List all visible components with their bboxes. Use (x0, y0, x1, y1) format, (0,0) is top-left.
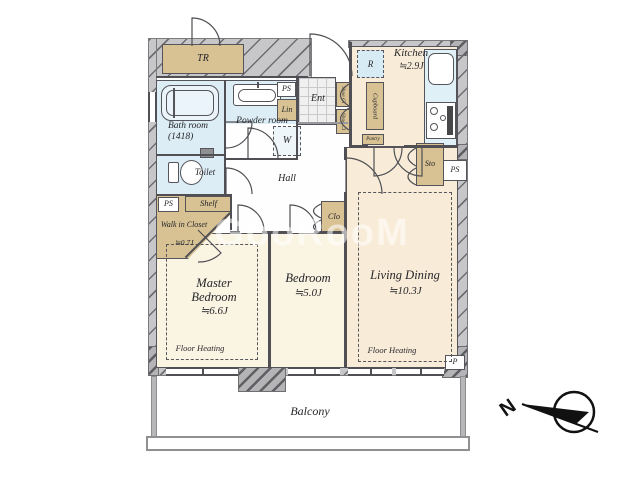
wic-name-text: Walk in Closet (161, 221, 207, 230)
trunk-room-box: TR (162, 44, 244, 74)
balcony-text: Balcony (290, 405, 329, 418)
bathroom-label: Bath room (1418) (168, 112, 212, 152)
master-bedroom-size-text: ≒6.6J (200, 305, 228, 317)
floor-heating-label-master: Floor Heating (170, 342, 230, 355)
wic-size-text: ≒0.7J (175, 239, 194, 247)
watermark: GooRooM (192, 210, 432, 256)
floor-heating-living-text: Floor Heating (368, 346, 417, 356)
floor-heating-master-text: Floor Heating (176, 344, 225, 354)
powder-room-text: Powder room (236, 116, 288, 127)
kitchen-name-text: Kitchen (394, 47, 428, 59)
ps-wic-label: PS (164, 200, 173, 209)
living-dining-name: Living Dining (360, 267, 450, 283)
pantry-label: Pantry (366, 137, 380, 143)
floor-plan: TR R Cupboard Pantry Shoe Cl Shoe Cl PS … (0, 0, 640, 480)
wall (349, 42, 352, 147)
compass-north-label: N (496, 395, 520, 421)
wall (404, 145, 458, 148)
wall (224, 80, 226, 156)
bedroom-name-text: Bedroom (285, 271, 330, 285)
shoe-closet-1-label: Shoe Cl (340, 86, 346, 103)
toilet-tank-icon (168, 162, 179, 183)
bedroom-size: ≒5.0J (288, 287, 328, 300)
floor-heating-label-living: Floor Heating (362, 344, 422, 357)
kitchen-size-text: ≒2.9J (398, 61, 423, 72)
wall (156, 76, 308, 78)
trunk-room-label: TR (197, 53, 209, 64)
pipe-label: P (453, 358, 458, 367)
hall-text: Hall (278, 173, 296, 184)
powder-room-label: Powder room (236, 108, 288, 134)
wic-size: ≒0.7J (157, 238, 211, 249)
living-dining-name-text: Living Dining (370, 268, 440, 282)
wall (156, 154, 226, 156)
window (288, 367, 340, 376)
washer-label: W (283, 135, 291, 146)
window (166, 367, 238, 376)
storage-box: Sto (416, 143, 444, 186)
outer-wall-right (457, 40, 468, 376)
cupboard-label: Cupboard (371, 93, 378, 119)
bedroom-size-text: ≒5.0J (294, 287, 322, 299)
kitchen-size: ≒2.9J (384, 60, 438, 73)
balcony-label: Balcony (268, 404, 352, 420)
living-dining-size: ≒10.3J (374, 284, 436, 298)
window (348, 367, 392, 376)
refrigerator-label: R (368, 59, 374, 69)
watermark-text: GooRooM (214, 212, 410, 255)
cupboard-box: Cupboard (366, 82, 384, 130)
balcony-wall-left (151, 376, 157, 437)
hall-label: Hall (266, 172, 308, 186)
toilet-text: Toilet (195, 167, 215, 177)
wall (351, 145, 368, 148)
ps-kitchen-box: PS (443, 160, 467, 181)
ps-powder-box: PS (277, 82, 296, 97)
entrance-step (298, 122, 348, 124)
balcony-wall-right (460, 376, 466, 437)
bedroom-name: Bedroom (277, 271, 339, 285)
ps-kitchen-label: PS (451, 166, 460, 175)
toilet-label: Toilet (184, 166, 226, 179)
storage-label: Sto (425, 160, 435, 169)
ps-wic-box: PS (158, 197, 179, 212)
wall (156, 194, 232, 196)
shelf-label: Shelf (200, 199, 217, 209)
pantry-box: Pantry (362, 134, 384, 145)
powder-sink-icon (233, 84, 281, 106)
master-bedroom-name-text: Master Bedroom (176, 276, 252, 304)
master-bedroom-size: ≒6.6J (190, 305, 238, 318)
kitchen-name: Kitchen (374, 47, 448, 60)
stove-icon (426, 102, 456, 139)
wall (296, 78, 298, 124)
entrance-text: Ent (311, 93, 325, 104)
window (396, 367, 444, 376)
shoe-closet-1: Shoe Cl (336, 82, 350, 107)
wall (226, 158, 298, 160)
wall (296, 124, 298, 158)
master-bedroom-name: Master Bedroom (176, 276, 252, 304)
balcony-rail (146, 436, 470, 451)
compass-icon: N (492, 384, 612, 446)
entrance-label: Ent (300, 92, 336, 106)
wic-name: Walk in Closet (157, 212, 211, 238)
bathroom-text: Bath room (1418) (168, 121, 212, 142)
wall (344, 147, 347, 160)
window-bath (148, 92, 157, 122)
ps-powder-label: PS (282, 85, 291, 94)
living-dining-size-text: ≒10.3J (388, 285, 421, 297)
